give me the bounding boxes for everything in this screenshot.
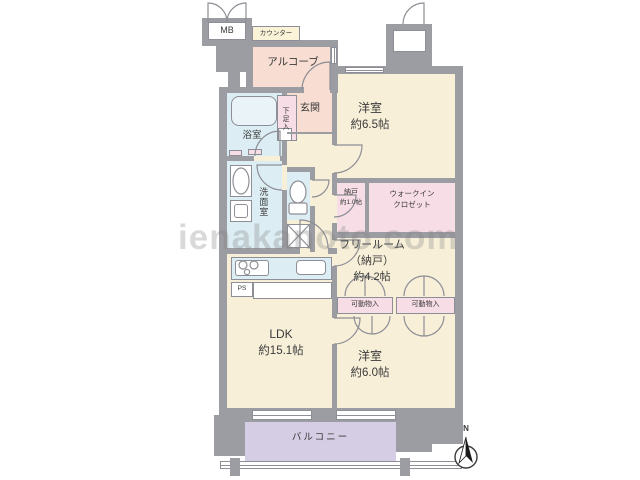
- balcony-wall: [430, 415, 463, 444]
- western-room-1-size: 約6.5帖: [320, 119, 420, 132]
- window-bedroom-balcony: [336, 410, 396, 420]
- balcony-wall: [396, 415, 432, 452]
- wall: [246, 40, 338, 47]
- balcony-label: バルコニー: [245, 433, 396, 444]
- washing-machine-drum: [234, 204, 248, 218]
- balcony-wall: [214, 415, 245, 456]
- meter-box-door: [393, 30, 426, 52]
- pipe-space-label: PS: [231, 285, 253, 292]
- railing-post: [230, 458, 240, 476]
- wall: [246, 87, 304, 93]
- compass-north-label: N: [460, 424, 472, 433]
- storage-1-label: 納戸: [333, 189, 369, 197]
- compass-needle-dark: [466, 437, 473, 463]
- wall: [337, 178, 463, 183]
- ldk-size: 約15.1帖: [231, 345, 331, 358]
- window-ldk-balcony: [252, 410, 312, 420]
- floorplan-canvas: MB カウンター アルコーブ 玄関 下足入 浴室 洗面室 洋室 約6.5帖 納戸…: [0, 0, 640, 480]
- wall: [227, 156, 254, 161]
- walk-in-closet-label-1: ウォークイン: [370, 190, 454, 199]
- door-arc-neighbor: [403, 3, 424, 24]
- wall: [282, 161, 287, 165]
- window: [345, 67, 384, 73]
- walk-in-closet-label-2: クロゼット: [370, 201, 454, 210]
- bathroom-label: 浴室: [227, 131, 277, 142]
- toilet-area: [287, 172, 310, 220]
- shoe-cabinet-label: 下足入: [281, 99, 289, 139]
- movable-storage-1-label: 可動物入: [337, 301, 393, 309]
- towel-rack: [229, 150, 242, 156]
- genkan-step: [287, 132, 332, 134]
- bathtub: [231, 96, 277, 126]
- ldk-label: LDK: [231, 328, 331, 342]
- counter-label: カウンター: [252, 30, 300, 37]
- watermark: ienakanoto.com: [178, 218, 458, 258]
- storage-1-size: 約1.0帖: [332, 199, 370, 206]
- railing-post: [400, 458, 410, 476]
- wall: [219, 87, 246, 93]
- vanity-counter: [230, 165, 252, 197]
- wall: [310, 172, 315, 180]
- western-room-2-label: 洋室: [320, 350, 420, 364]
- kitchen-cabinet: [253, 282, 332, 299]
- balcony-railing: [220, 461, 462, 469]
- alcove-label: アルコーブ: [255, 56, 331, 68]
- movable-storage-2-label: 可動物入: [396, 301, 455, 309]
- western-room-2-size: 約6.0帖: [320, 367, 420, 380]
- western-room-1-label: 洋室: [320, 102, 420, 116]
- stove: [235, 260, 269, 276]
- free-room-size: 約4.2帖: [322, 271, 422, 284]
- towel-rack: [248, 149, 262, 155]
- window: [331, 47, 337, 64]
- meter-box-label: MB: [207, 25, 247, 35]
